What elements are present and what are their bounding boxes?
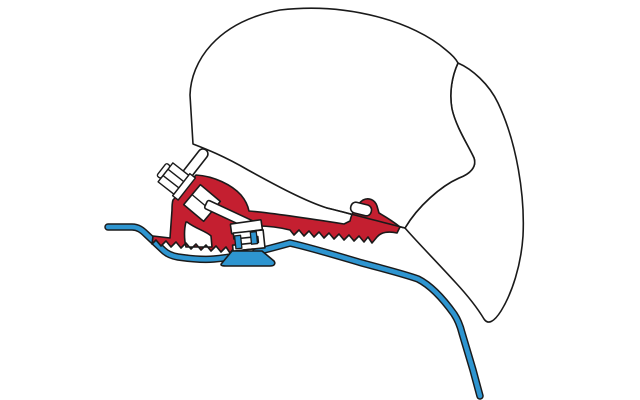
- rail-flange-right: [250, 232, 257, 245]
- vehicle-roof-line: [108, 227, 480, 396]
- technical-diagram: [0, 0, 640, 400]
- diagram-stage: [0, 0, 640, 400]
- rail-flange-left: [235, 235, 242, 249]
- rail-base: [221, 251, 275, 266]
- diagram-root: [108, 8, 523, 396]
